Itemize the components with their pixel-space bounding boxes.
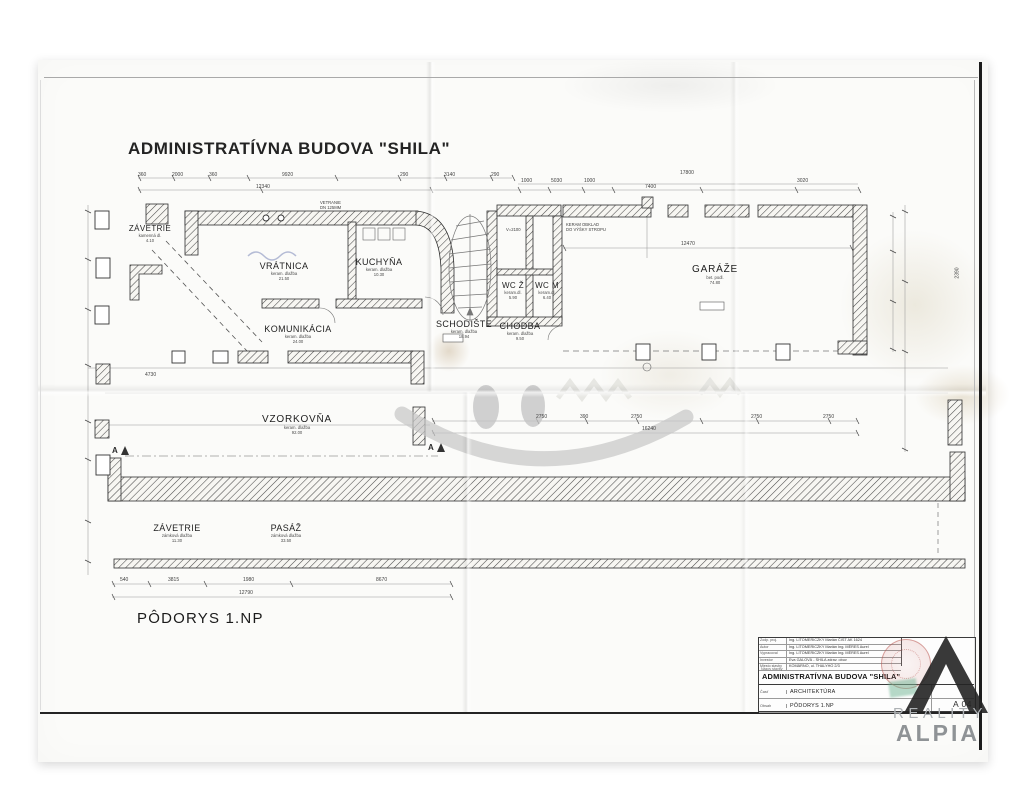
scanned-floor-plan-photo: ADMINISTRATÍVNA BUDOVA "SHILA" PÔDORYS 1… [0, 0, 1024, 791]
alpia-mountain-icon [904, 636, 988, 713]
watermark-alpia: ALPIA [896, 720, 980, 747]
reality-alpia-logo [0, 0, 1024, 791]
